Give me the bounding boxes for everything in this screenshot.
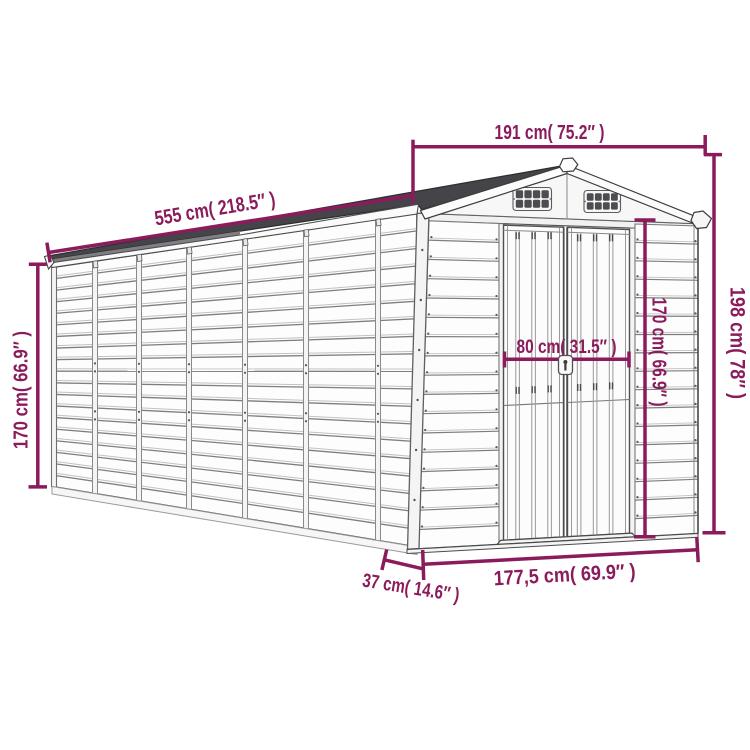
svg-text:198 cm( 78″ ): 198 cm( 78″ ): [726, 287, 750, 399]
svg-text:170 cm( 66.9″ ): 170 cm( 66.9″ ): [10, 331, 33, 449]
svg-text:170 cm( 66.9″ ): 170 cm( 66.9″ ): [648, 298, 671, 407]
svg-text:80 cm( 31.5″ ): 80 cm( 31.5″ ): [517, 336, 617, 358]
svg-text:191 cm( 75.2″ ): 191 cm( 75.2″ ): [495, 121, 605, 144]
